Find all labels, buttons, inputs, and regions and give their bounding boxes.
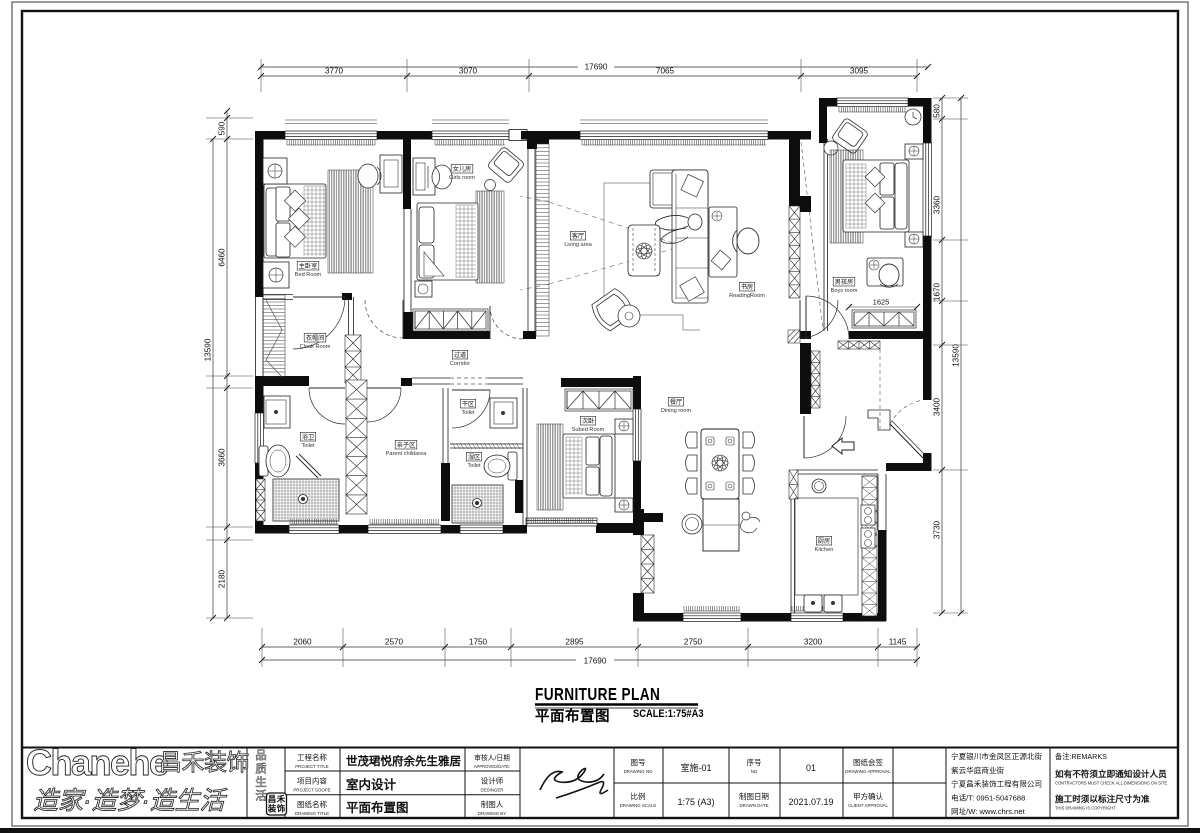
- svg-text:Toilet: Toilet: [301, 443, 315, 449]
- svg-text:室内设计: 室内设计: [346, 777, 397, 792]
- svg-text:3200: 3200: [804, 638, 823, 647]
- svg-text:17690: 17690: [585, 63, 608, 72]
- svg-text:工程名称: 工程名称: [297, 752, 327, 762]
- svg-text:Girls room: Girls room: [449, 175, 475, 181]
- svg-text:Corridor: Corridor: [450, 361, 470, 367]
- svg-text:3730: 3730: [933, 520, 942, 539]
- svg-text:3070: 3070: [459, 67, 478, 76]
- svg-text:湿区: 湿区: [468, 453, 480, 461]
- svg-text:3660: 3660: [218, 448, 227, 467]
- svg-text:PROJECT SOOPE: PROJECT SOOPE: [293, 788, 330, 793]
- svg-text:3095: 3095: [850, 67, 869, 76]
- svg-text:Subed Room: Subed Room: [572, 427, 605, 433]
- svg-text:审核人/日期: 审核人/日期: [474, 753, 510, 762]
- svg-text:Bed Room: Bed Room: [295, 272, 322, 278]
- svg-text:13590: 13590: [952, 344, 961, 367]
- svg-text:FURNITURE PLAN: FURNITURE PLAN: [535, 686, 660, 705]
- svg-text:2570: 2570: [385, 638, 404, 647]
- svg-text:DRAWING BY: DRAWING BY: [478, 811, 506, 816]
- svg-text:制图人: 制图人: [481, 799, 504, 809]
- svg-text:品: 品: [255, 749, 267, 762]
- svg-text:紫云华庭商业街: 紫云华庭商业街: [951, 765, 1005, 775]
- svg-text:DRAWING APPROVAL: DRAWING APPROVAL: [845, 769, 891, 774]
- svg-text:平面布置图: 平面布置图: [346, 800, 409, 815]
- svg-text:干区: 干区: [462, 401, 474, 408]
- svg-text:Living area: Living area: [564, 242, 592, 248]
- svg-text:亲子区: 亲子区: [397, 441, 416, 449]
- svg-text:男孩房: 男孩房: [835, 278, 854, 286]
- svg-text:质: 质: [255, 763, 267, 776]
- svg-text:580: 580: [933, 104, 942, 118]
- svg-text:Toilet: Toilet: [467, 463, 481, 469]
- svg-text:2060: 2060: [293, 638, 312, 647]
- svg-text:1750: 1750: [469, 638, 488, 647]
- svg-text:序号: 序号: [747, 757, 762, 767]
- svg-text:THIS DRAWING IS COPYRIGHT: THIS DRAWING IS COPYRIGHT: [1055, 806, 1116, 811]
- svg-text:图纸名称: 图纸名称: [297, 799, 327, 809]
- svg-text:1145: 1145: [889, 638, 907, 647]
- svg-text:DESINGER: DESINGER: [481, 788, 504, 793]
- svg-text:1:75 (A3): 1:75 (A3): [677, 797, 714, 807]
- svg-text:昌: 昌: [268, 794, 277, 804]
- svg-text:衣帽间: 衣帽间: [306, 334, 325, 342]
- svg-text:图纸会签: 图纸会签: [853, 757, 883, 767]
- svg-text:590: 590: [218, 121, 227, 135]
- svg-text:APPROVED/DATE:: APPROVED/DATE:: [474, 764, 510, 769]
- svg-text:图号: 图号: [631, 758, 646, 767]
- svg-text:世茂珺悦府余先生雅居: 世茂珺悦府余先生雅居: [346, 754, 461, 768]
- svg-text:7065: 7065: [656, 67, 675, 76]
- svg-text:甲方确认: 甲方确认: [853, 791, 883, 801]
- svg-text:CONTRACTORS MUST CHECK ALL DIM: CONTRACTORS MUST CHECK ALL DIMENSIONS ON…: [1055, 781, 1168, 786]
- svg-text:过道: 过道: [454, 351, 466, 359]
- svg-text:室施-01: 室施-01: [680, 762, 711, 773]
- svg-text:平面布置图: 平面布置图: [535, 707, 610, 725]
- svg-text:2750: 2750: [684, 638, 703, 647]
- svg-text:厨房: 厨房: [818, 537, 830, 545]
- svg-text:PROJECT TITLE: PROJECT TITLE: [295, 764, 329, 769]
- svg-text:2895: 2895: [565, 638, 584, 647]
- svg-text:如有不符须立即通知设计人员: 如有不符须立即通知设计人员: [1055, 768, 1167, 779]
- svg-text:备注:REMARKS: 备注:REMARKS: [1055, 752, 1107, 761]
- svg-text:6460: 6460: [218, 248, 227, 267]
- svg-text:次卧: 次卧: [582, 417, 594, 425]
- svg-text:宁夏银川市金凤区正源北街: 宁夏银川市金凤区正源北街: [951, 751, 1043, 761]
- svg-text:3360: 3360: [933, 195, 942, 214]
- svg-text:SCALE:1:75#A3: SCALE:1:75#A3: [633, 708, 704, 720]
- svg-text:比例: 比例: [631, 791, 646, 801]
- svg-text:CLIENT APPROVAL: CLIENT APPROVAL: [848, 803, 888, 808]
- svg-text:餐厅: 餐厅: [670, 398, 682, 406]
- svg-text:Chanehe: Chanehe: [26, 742, 168, 783]
- svg-text:ReadingRoom: ReadingRoom: [729, 293, 765, 299]
- svg-text:Dining room: Dining room: [661, 408, 691, 414]
- svg-text:饰: 饰: [277, 804, 286, 814]
- svg-text:2021.07.19: 2021.07.19: [788, 797, 833, 807]
- svg-text:主卧室: 主卧室: [299, 262, 318, 270]
- svg-text:电话/T: 0951-5047688: 电话/T: 0951-5047688: [951, 792, 1025, 802]
- svg-text:昌禾装饰: 昌禾装饰: [159, 749, 249, 775]
- svg-text:活: 活: [255, 789, 267, 803]
- svg-text:项目内容: 项目内容: [297, 776, 327, 786]
- svg-text:01: 01: [806, 763, 816, 773]
- svg-text:造家·造梦·造生活: 造家·造梦·造生活: [33, 787, 228, 815]
- svg-text:女儿房: 女儿房: [453, 165, 472, 173]
- svg-text:书房: 书房: [741, 283, 753, 291]
- svg-text:客厅: 客厅: [572, 232, 584, 240]
- svg-text:3770: 3770: [325, 67, 344, 76]
- svg-text:DRAWING NO: DRAWING NO: [624, 769, 653, 774]
- svg-text:Cloak Room: Cloak Room: [300, 344, 331, 350]
- svg-text:装: 装: [267, 804, 277, 814]
- svg-text:Parent childarea: Parent childarea: [386, 451, 428, 457]
- svg-text:网址/W: www.chrs.net: 网址/W: www.chrs.net: [951, 806, 1026, 816]
- svg-text:施工时须以标注尺寸为准: 施工时须以标注尺寸为准: [1055, 793, 1150, 804]
- svg-text:13590: 13590: [204, 338, 213, 361]
- svg-text:3400: 3400: [933, 397, 942, 416]
- svg-text:1670: 1670: [933, 282, 942, 301]
- svg-text:17690: 17690: [584, 657, 607, 666]
- svg-text:Kitchen: Kitchen: [815, 547, 834, 553]
- svg-text:Toilet: Toilet: [461, 410, 475, 416]
- svg-text:制图日期: 制图日期: [739, 791, 769, 801]
- svg-text:生: 生: [255, 775, 267, 789]
- svg-text:DRAWING SCALE: DRAWING SCALE: [620, 803, 657, 808]
- svg-text:DRAWING TITLE: DRAWING TITLE: [295, 811, 329, 816]
- svg-text:禾: 禾: [277, 794, 286, 804]
- svg-text:NO: NO: [751, 769, 758, 774]
- svg-text:DRAWN DATE: DRAWN DATE: [739, 803, 768, 808]
- svg-text:1625: 1625: [873, 298, 890, 307]
- svg-text:Boys room: Boys room: [831, 288, 858, 294]
- svg-text:宁夏昌禾装饰工程有限公司: 宁夏昌禾装饰工程有限公司: [951, 779, 1042, 789]
- svg-text:浴卫: 浴卫: [302, 433, 314, 441]
- svg-text:设计师: 设计师: [481, 776, 504, 786]
- svg-text:2180: 2180: [218, 569, 227, 588]
